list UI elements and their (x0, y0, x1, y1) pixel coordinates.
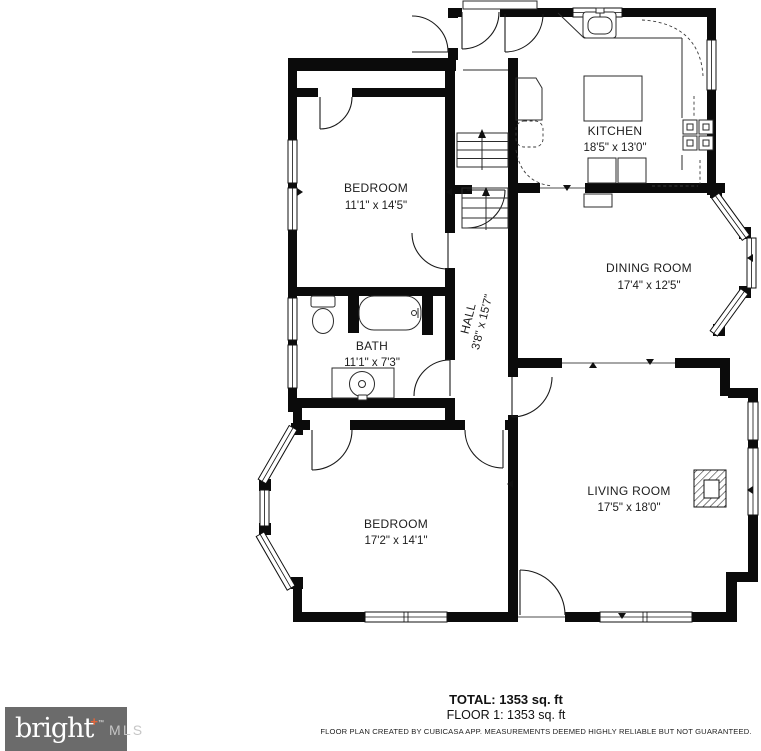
bathtub-icon (359, 296, 421, 330)
walls-layer (259, 8, 758, 622)
kitchen-sink-icon (583, 8, 616, 38)
logo-plus-icon: + (90, 714, 98, 729)
room-dims: 17'5" x 18'0" (597, 502, 660, 514)
room-name: BATH (356, 339, 388, 353)
room-label-dining: DINING ROOM 17'4" x 12'5" (606, 261, 692, 292)
floor-plan-page: KITCHEN 18'5" x 13'0" BEDROOM 11'1" x 14… (0, 0, 761, 751)
vanity-sink-icon (332, 368, 394, 400)
refrigerator-icon (516, 78, 543, 147)
room-dims: 17'4" x 12'5" (617, 280, 680, 292)
logo-trademark: ™ (98, 720, 104, 726)
disclaimer-text: FLOOR PLAN CREATED BY CUBICASA APP. MEAS… (316, 727, 756, 736)
front-door-arc (462, 12, 499, 49)
room-dims: 11'1" x 7'3" (344, 357, 400, 369)
bedroom1-closet-door-arc (320, 97, 352, 129)
room-dims: 11'1" x 14'5" (345, 200, 407, 212)
kitchen-door-arc (505, 14, 543, 52)
bedroom2-hall-door-arc (465, 430, 503, 468)
room-name: DINING ROOM (606, 261, 692, 275)
room-label-living: LIVING ROOM 17'5" x 18'0" (587, 484, 670, 514)
tub-wall-stub (348, 291, 359, 333)
bedroom2-door-arc (312, 430, 352, 470)
room-name: BEDROOM (344, 181, 408, 195)
bath-door-arc (414, 360, 450, 396)
room-dims: 18'5" x 13'0" (583, 142, 646, 154)
stairs (457, 129, 508, 230)
tub-wall-stub-right (422, 291, 433, 335)
room-label-bedroom2: BEDROOM 17'2" x 14'1" (364, 517, 428, 547)
kitchen-island (584, 76, 642, 121)
logo-brand-text: bright (15, 707, 93, 751)
passages-layer (463, 1, 675, 617)
room-dims: 17'2" x 14'1" (364, 535, 427, 547)
floor-plan-canvas: KITCHEN 18'5" x 13'0" BEDROOM 11'1" x 14… (0, 0, 761, 751)
room-name: KITCHEN (588, 124, 643, 138)
toilet-icon (311, 296, 335, 334)
logo-suffix-text: MLS (109, 722, 144, 738)
room-name: LIVING ROOM (587, 484, 670, 498)
bedroom1-door-arc (412, 233, 448, 269)
closet-door-arc (412, 16, 448, 52)
living-room-door-arc (512, 377, 552, 417)
fireplace-icon (694, 470, 726, 507)
exterior-door-arc (520, 570, 565, 615)
room-label-hall: HALL 3'8" x 15'7" (455, 289, 496, 351)
room-label-kitchen: KITCHEN 18'5" x 13'0" (583, 124, 646, 154)
total-area-text: TOTAL: 1353 sq. ft (356, 692, 656, 707)
room-name: BEDROOM (364, 517, 428, 531)
room-label-bath: BATH 11'1" x 7'3" (344, 339, 400, 369)
bright-mls-logo: bright+™MLS (5, 707, 127, 751)
room-label-bedroom1: BEDROOM 11'1" x 14'5" (344, 181, 408, 212)
dishwasher-icon (584, 158, 646, 207)
floor1-area-text: FLOOR 1: 1353 sq. ft (356, 708, 656, 722)
